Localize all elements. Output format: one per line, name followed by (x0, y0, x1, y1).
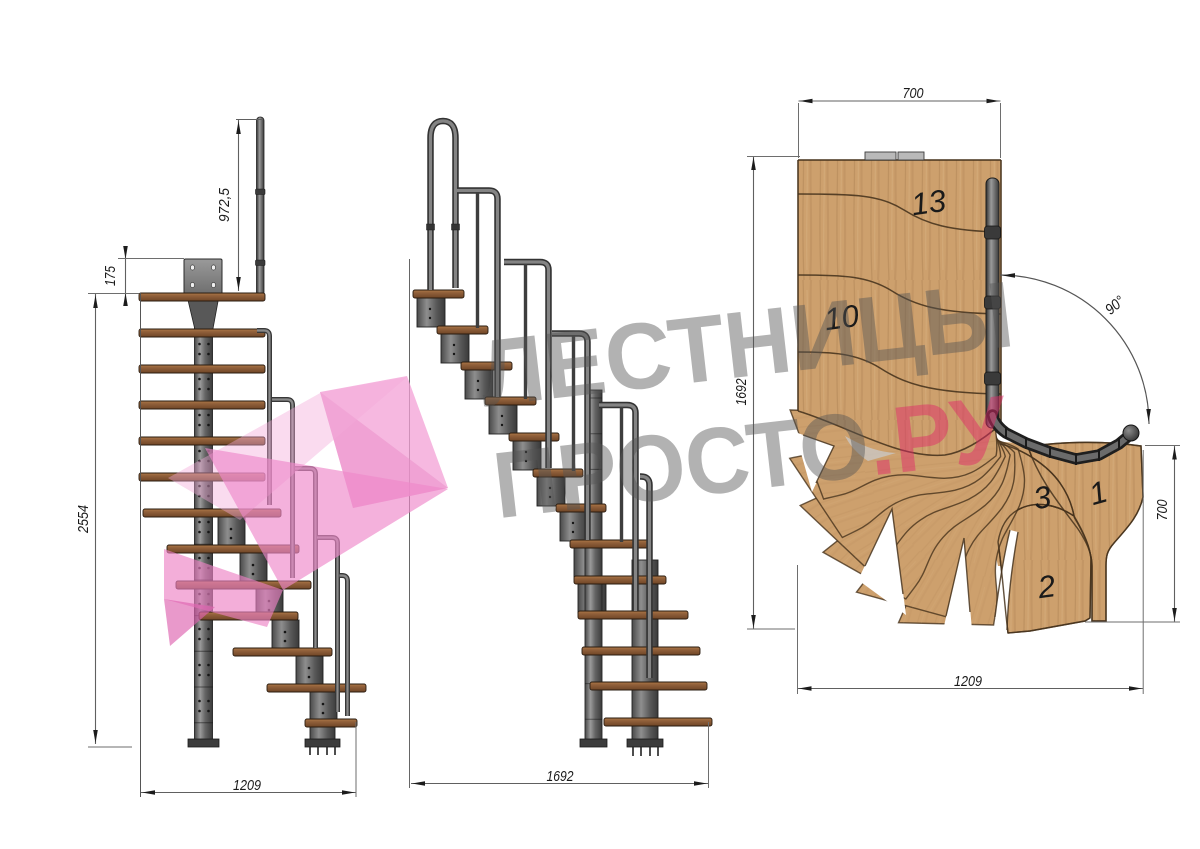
svg-text:700: 700 (903, 85, 925, 102)
svg-text:972,5: 972,5 (216, 187, 233, 222)
svg-text:13: 13 (909, 183, 948, 222)
svg-text:700: 700 (1154, 499, 1171, 521)
svg-text:1209: 1209 (233, 777, 262, 794)
svg-text:1209: 1209 (954, 673, 983, 690)
svg-text:90°: 90° (1102, 293, 1128, 319)
svg-text:1692: 1692 (547, 768, 575, 785)
svg-text:175: 175 (102, 265, 119, 286)
svg-text:2554: 2554 (75, 505, 92, 534)
